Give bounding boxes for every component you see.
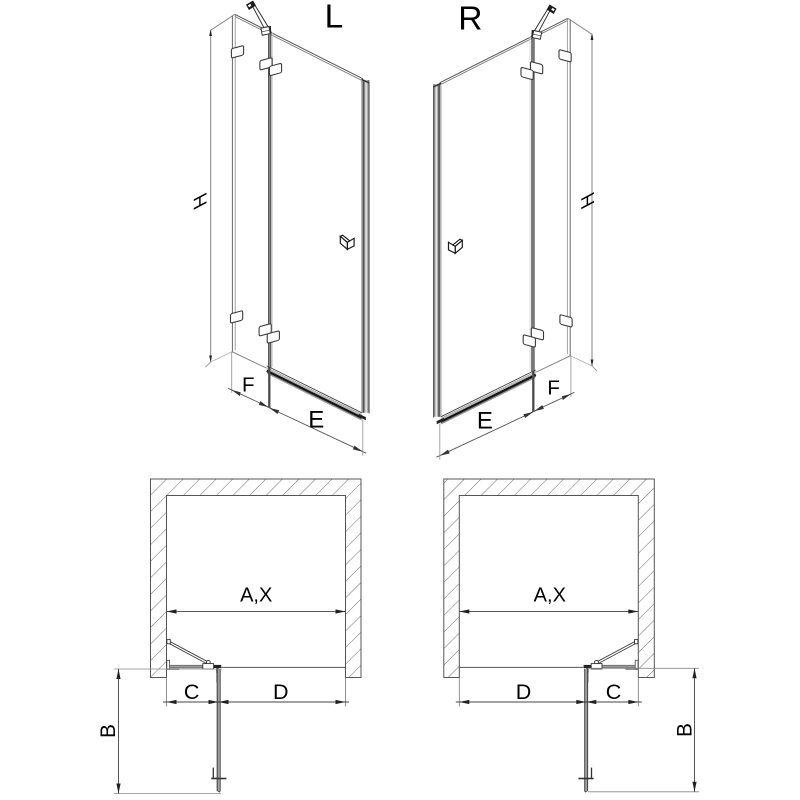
svg-text:C: C (606, 680, 622, 704)
svg-text:D: D (273, 680, 289, 704)
svg-text:L: L (325, 0, 344, 36)
svg-text:E: E (477, 408, 493, 435)
svg-text:A,X: A,X (534, 585, 566, 607)
svg-text:E: E (308, 407, 324, 434)
svg-text:H: H (578, 188, 599, 212)
svg-text:A,X: A,X (240, 585, 272, 607)
svg-text:C: C (184, 680, 200, 704)
svg-text:H: H (191, 189, 212, 213)
svg-text:F: F (242, 373, 255, 396)
svg-text:R: R (458, 0, 482, 37)
svg-text:B: B (674, 723, 697, 737)
svg-text:B: B (97, 724, 120, 738)
svg-text:F: F (547, 377, 560, 400)
svg-text:D: D (516, 680, 532, 704)
